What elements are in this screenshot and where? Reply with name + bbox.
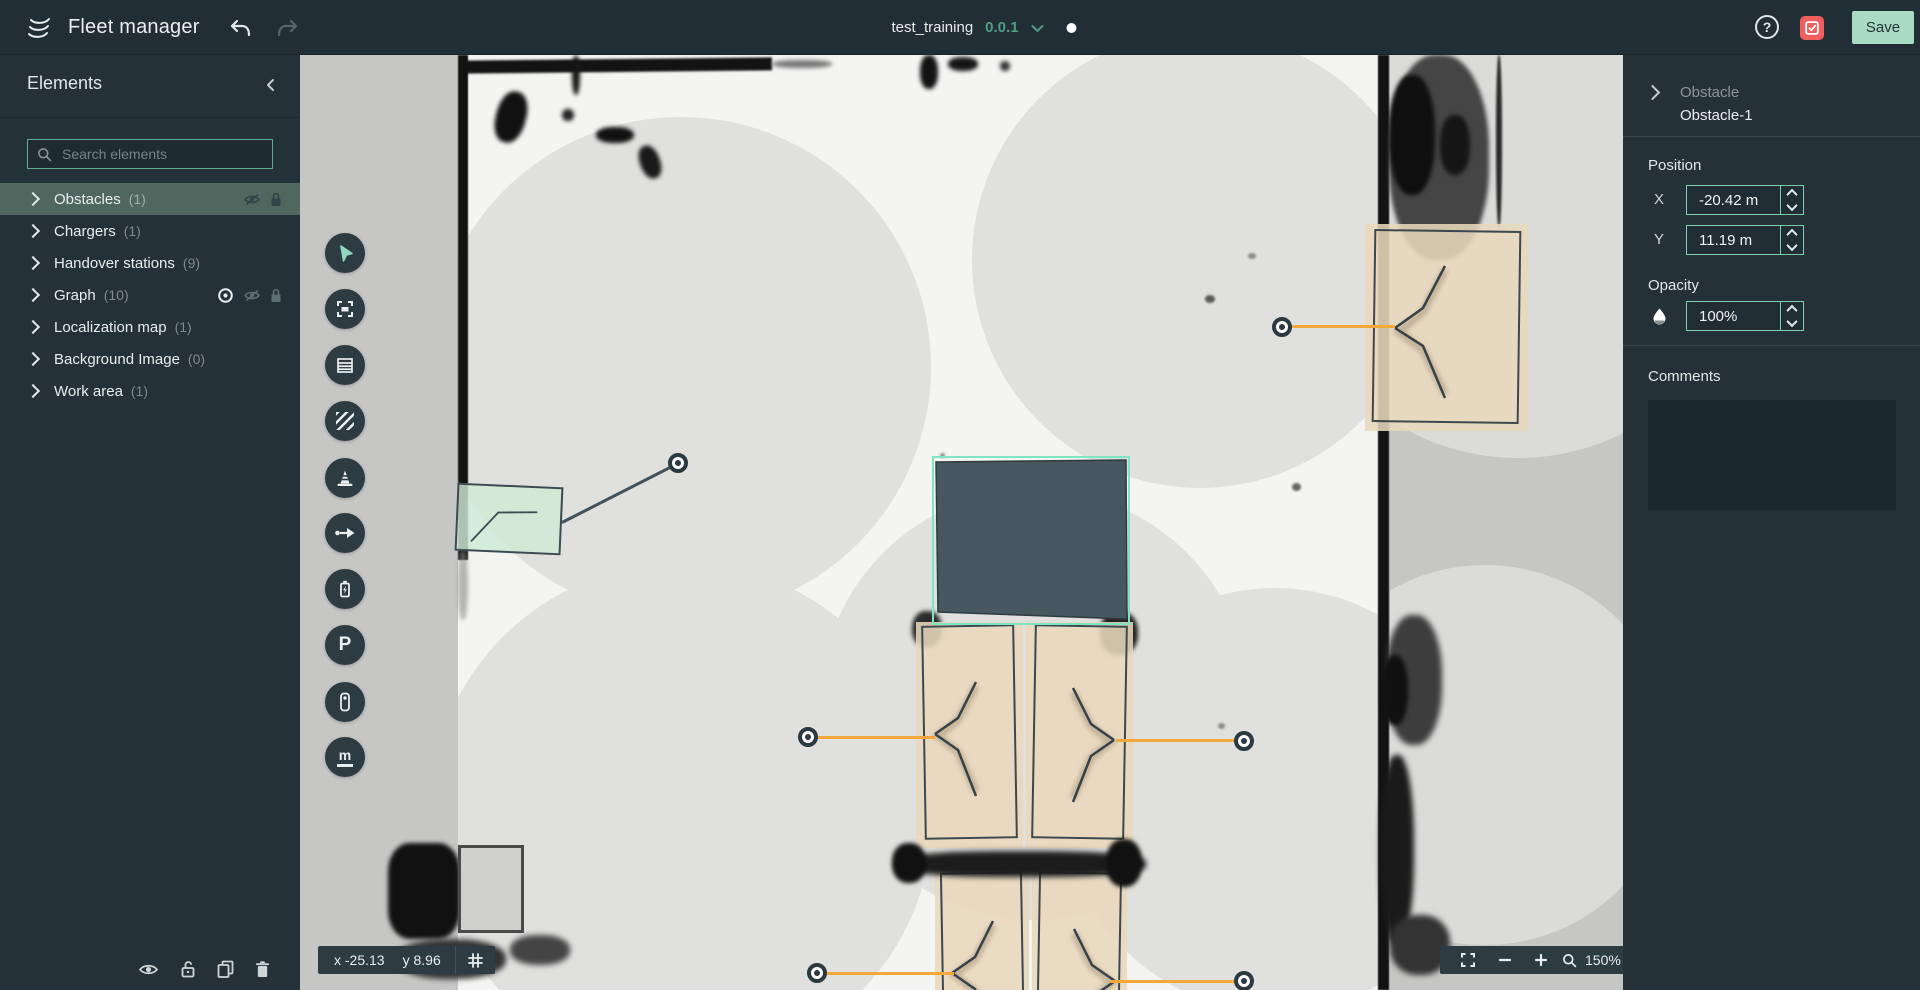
map-speckle [1248,253,1256,259]
divider [1623,136,1920,137]
elements-tree: Obstacles (1) Chargers (1) Handover stat… [0,183,300,407]
brand: Fleet manager [26,13,200,41]
x-decrement-button[interactable] [1781,200,1803,214]
fit-view-icon [335,299,355,319]
hatch-icon [336,412,354,430]
rack-icon [335,355,355,375]
item-count: (1) [131,383,148,399]
collapse-inspector-chevron-icon[interactable] [1645,85,1661,101]
obstacle-element-selected[interactable] [932,456,1130,625]
x-label: X [1654,191,1664,208]
sidebar-item-handover-stations[interactable]: Handover stations (9) [0,247,300,279]
item-label: Obstacles [54,191,121,208]
cone-icon [335,468,355,488]
sidebar-item-localization-map[interactable]: Localization map (1) [0,311,300,343]
lock-icon[interactable] [270,192,282,207]
map-blob [510,935,570,965]
undo-button[interactable] [228,15,254,41]
opacity-field[interactable]: 100% [1686,301,1804,331]
comments-input[interactable] [1648,400,1896,510]
opacity-stepper [1780,302,1803,330]
sidebar-item-graph[interactable]: Graph (10) [0,279,300,311]
item-label: Background Image [54,351,180,368]
opacity-row: 100% [1623,301,1920,331]
graph-node[interactable] [1272,317,1292,337]
item-label: Chargers [54,223,116,240]
graph-edge[interactable] [818,736,935,739]
opacity-decrement-button[interactable] [1781,316,1803,330]
fullscreen-icon [1460,952,1476,968]
item-count: (0) [188,351,205,367]
charger-element[interactable] [455,483,564,556]
station-device-icon [335,691,355,713]
tool-charger-button[interactable] [325,569,365,609]
grid-toggle-button[interactable] [455,946,495,974]
map-blob [920,55,938,89]
collapse-panel-button[interactable] [264,77,278,93]
map-blob [948,57,978,71]
search-input[interactable] [60,145,272,163]
show-all-eye-button[interactable] [136,958,161,980]
map-structure [458,845,524,933]
tool-cone-button[interactable] [325,458,365,498]
y-decrement-button[interactable] [1781,240,1803,254]
version-label[interactable]: 0.0.1 [985,19,1018,36]
chevron-down-icon[interactable] [1031,22,1045,34]
topbar: Fleet manager test_training 0.0.1 ? [0,0,1920,55]
sidebar-item-obstacles[interactable]: Obstacles (1) [0,183,300,215]
position-x-field[interactable]: -20.42 m [1686,185,1804,215]
chevron-right-icon[interactable] [26,320,40,334]
unsaved-indicator-dot [1067,23,1077,33]
graph-edge[interactable] [827,972,954,975]
inspector-element-name: Obstacle-1 [1680,107,1753,124]
elements-panel: Elements Obstacles (1) Chargers [0,55,300,990]
item-count: (1) [129,191,146,207]
inspector-type-label: Obstacle [1680,84,1739,101]
handover-station[interactable] [916,622,1023,848]
map-blob [1106,839,1142,887]
inspector-panel: Obstacle Obstacle-1 Position X -20.42 m … [1623,55,1920,990]
map-blob [1000,61,1010,71]
tool-edge-button[interactable] [325,513,365,553]
app-logo-icon [26,13,52,41]
sidebar-item-background-image[interactable]: Background Image (0) [0,343,300,375]
divider [1623,345,1920,346]
redo-button[interactable] [276,15,302,41]
map-blob [388,843,460,939]
map-speckle [1218,723,1225,729]
chevron-right-icon[interactable] [26,224,40,238]
chevron-right-icon[interactable] [26,288,40,302]
map-blob [1496,55,1502,227]
magnifier-icon [1562,953,1577,968]
position-y-value[interactable]: 11.19 m [1687,226,1780,254]
comments-heading: Comments [1648,368,1721,385]
position-y-row: Y 11.19 m [1623,225,1920,255]
edge-arrow-icon [334,525,356,541]
y-stepper [1780,226,1803,254]
item-label: Localization map [54,319,167,336]
tool-measure-button[interactable]: m [325,737,365,777]
save-button[interactable]: Save [1852,11,1914,44]
chevron-right-icon[interactable] [26,256,40,270]
zoom-level[interactable]: 150% [1585,952,1621,968]
zoom-in-button[interactable] [1526,949,1556,971]
map-blob [772,60,832,68]
graph-node[interactable] [807,963,827,983]
project-name: test_training [891,19,973,36]
grid-icon [468,953,483,968]
opacity-value[interactable]: 100% [1687,302,1780,330]
handover-station[interactable] [1032,869,1127,990]
graph-node[interactable] [1234,731,1254,751]
map-speckle [1205,295,1215,303]
map-blob [458,550,468,620]
validation-alert-button[interactable] [1800,16,1824,40]
chevron-right-icon[interactable] [26,352,40,366]
tool-select-button[interactable] [325,233,365,273]
graph-node[interactable] [1234,971,1254,990]
cursor-x: x -25.13 [334,952,385,968]
y-label: Y [1654,231,1664,248]
elements-panel-header: Elements [0,55,300,118]
map-speckle [1292,483,1301,491]
cursor-coordinates: x -25.13 y 8.96 [318,946,495,974]
chevron-right-icon[interactable] [26,192,40,206]
graph-edge[interactable] [1110,980,1244,983]
app-title: Fleet manager [68,16,200,39]
item-count: (1) [175,319,192,335]
tool-parking-button[interactable]: P [325,625,365,665]
tool-handover-station-button[interactable] [325,682,365,722]
x-stepper [1780,186,1803,214]
panel-title: Elements [27,73,102,94]
map-canvas[interactable]: P m x -25.13 y 8.96 [300,55,1623,990]
item-count: (10) [104,287,129,303]
elements-footer-toolbar [0,958,300,980]
fleet-manager-app: Fleet manager test_training 0.0.1 ? [0,0,1920,990]
cursor-y: y 8.96 [403,952,441,968]
minus-icon [1498,953,1512,967]
map-blob [572,55,580,95]
map-blob [562,109,574,121]
tool-rack-button[interactable] [325,345,365,385]
position-x-value[interactable]: -20.42 m [1687,186,1780,214]
item-label: Graph [54,287,96,304]
zoom-out-button[interactable] [1490,949,1520,971]
opacity-heading: Opacity [1648,277,1699,294]
measure-glyph: m [337,748,353,767]
position-y-field[interactable]: 11.19 m [1686,225,1804,255]
position-heading: Position [1648,157,1701,174]
target-icon[interactable] [217,287,234,304]
map-blob [1382,655,1408,725]
cursor-icon [335,243,355,263]
tool-fit-view-button[interactable] [325,289,365,329]
sidebar-item-chargers[interactable]: Chargers (1) [0,215,300,247]
position-x-row: X -20.42 m [1623,185,1920,215]
item-label: Work area [54,383,123,400]
search-icon [37,147,52,162]
tool-obstacle-button[interactable] [325,401,365,441]
graph-node[interactable] [798,727,818,747]
graph-edge[interactable] [1116,739,1244,742]
lock-icon[interactable] [270,288,282,303]
item-label: Handover stations [54,255,175,272]
map-blob [596,127,634,143]
help-button[interactable]: ? [1755,15,1779,39]
eye-off-icon[interactable] [243,288,261,303]
sidebar-item-work-area[interactable]: Work area (1) [0,375,300,407]
item-count: (9) [183,255,200,271]
zoom-controls: 150% [1440,946,1623,974]
plus-icon [1534,953,1548,967]
fullscreen-button[interactable] [1452,948,1484,972]
graph-edge[interactable] [1292,325,1395,328]
duplicate-button[interactable] [215,958,236,980]
parking-glyph: P [339,634,352,656]
opacity-increment-button[interactable] [1781,302,1803,316]
unlock-all-button[interactable] [178,958,198,980]
map-blob [1389,75,1435,195]
delete-button[interactable] [253,958,272,980]
eye-off-icon[interactable] [243,192,261,207]
opacity-drop-icon [1651,307,1668,325]
handover-station[interactable] [1026,622,1133,848]
map-blob [1440,115,1470,175]
x-increment-button[interactable] [1781,186,1803,200]
item-count: (1) [124,223,141,239]
y-increment-button[interactable] [1781,226,1803,240]
search-elements-box [27,139,273,169]
chevron-right-icon[interactable] [26,384,40,398]
map-blob [892,843,926,883]
battery-icon [335,579,355,599]
graph-node[interactable] [668,453,688,473]
